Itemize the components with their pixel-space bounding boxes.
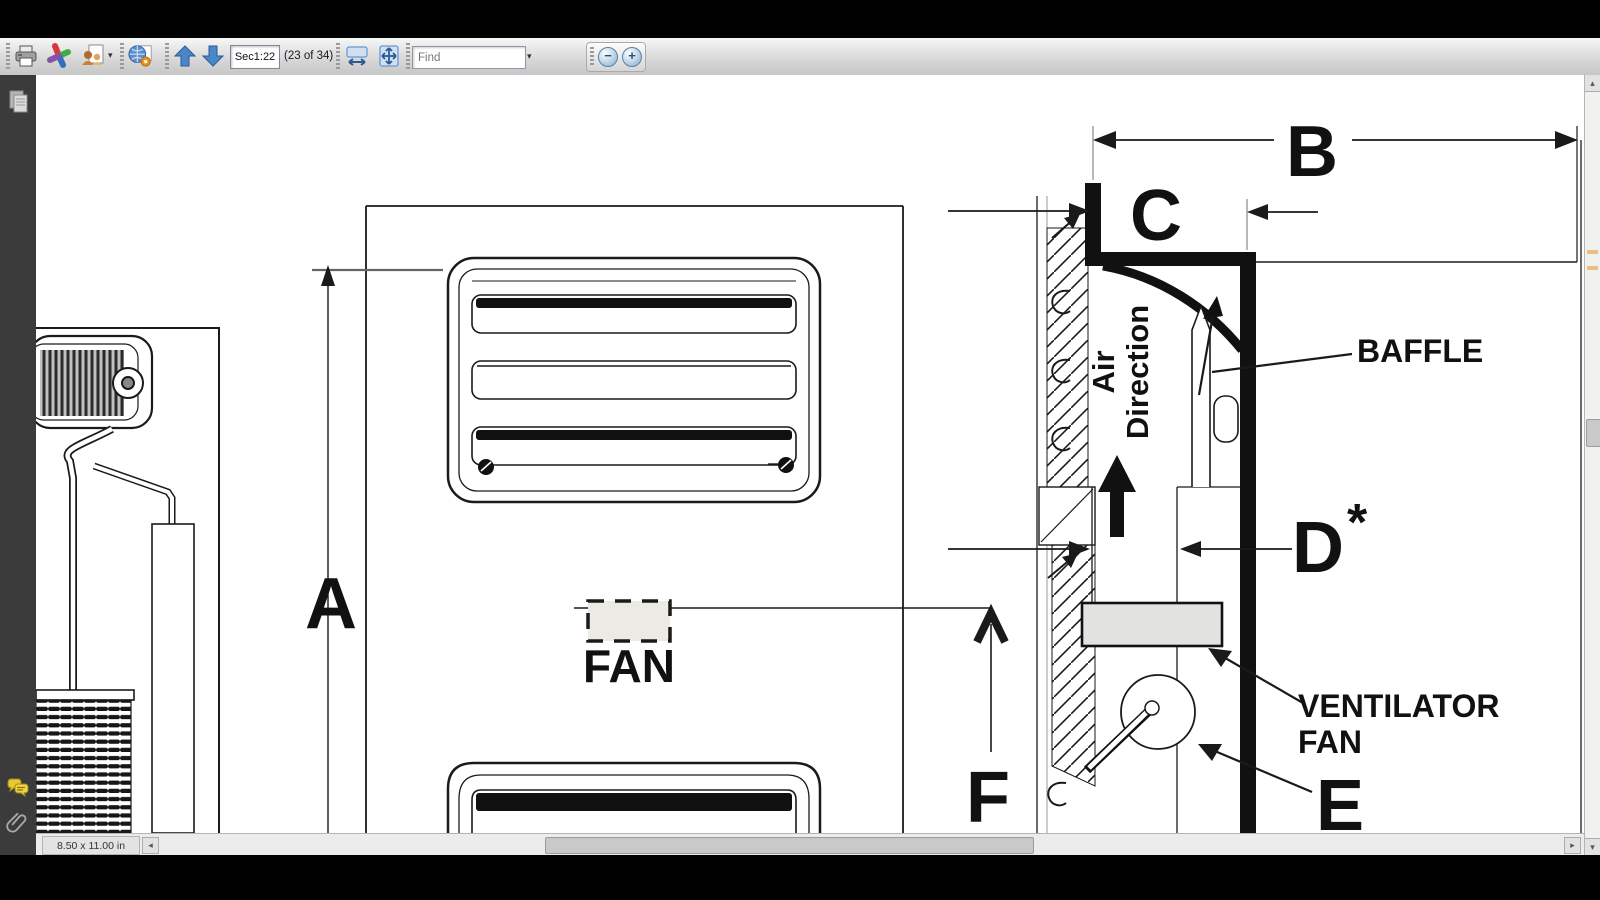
- zoom-button-panel: − +: [586, 42, 646, 72]
- scroll-left-icon: ◂: [148, 841, 153, 850]
- status-bar: 8.50 x 11.00 in ◂ ▸: [36, 833, 1584, 856]
- people-page-icon: [80, 43, 106, 69]
- review-comment-button[interactable]: [46, 43, 72, 69]
- top-letterbox: [0, 0, 1600, 38]
- pages-panel-button[interactable]: [6, 89, 30, 113]
- scroll-down-icon: ▾: [1590, 843, 1595, 852]
- dim-label-d-star: *: [1347, 494, 1368, 552]
- baffle-label: BAFFLE: [1357, 333, 1483, 369]
- paperclip-icon: [6, 811, 30, 835]
- toolbar: ▾ Sec1:22 (23 of 34): [0, 38, 1600, 76]
- toolbar-grip: [6, 43, 10, 69]
- toolbar-grip: [406, 43, 410, 69]
- technical-drawing: A B C D * E F FAN BAFFLE VENTILATOR FAN …: [36, 75, 1584, 833]
- application-window: ▾ Sec1:22 (23 of 34): [0, 0, 1600, 900]
- air-direction-label-line1: Air: [1086, 350, 1121, 393]
- zoom-in-button[interactable]: +: [622, 47, 642, 67]
- page-size-label: 8.50 x 11.00 in: [42, 836, 140, 855]
- next-page-button[interactable]: [200, 43, 226, 69]
- panel-grip: [590, 47, 594, 67]
- comments-icon: [6, 775, 30, 799]
- down-arrow-icon: [201, 44, 225, 68]
- scroll-right-icon: ▸: [1570, 841, 1575, 850]
- toolbar-grip: [336, 43, 340, 69]
- comments-panel-button[interactable]: [6, 775, 30, 799]
- print-button[interactable]: [13, 43, 39, 69]
- toolbar-grip: [165, 43, 169, 69]
- printer-icon: [13, 43, 39, 69]
- air-direction-label-line2: Direction: [1120, 305, 1155, 439]
- fit-page-icon: [377, 44, 401, 68]
- navigation-sidebar: [0, 75, 37, 855]
- dim-label-a: A: [305, 564, 357, 644]
- bottom-letterbox: [0, 855, 1600, 900]
- globe-page-icon: [128, 43, 154, 69]
- dim-label-b: B: [1286, 112, 1338, 192]
- fit-width-icon: [345, 44, 369, 68]
- scroll-left-button[interactable]: ◂: [142, 837, 159, 854]
- find-placeholder: Find: [413, 52, 525, 64]
- fan-label: FAN: [583, 640, 675, 692]
- dim-label-e: E: [1316, 766, 1364, 833]
- scroll-down-button[interactable]: ▾: [1585, 838, 1600, 855]
- pages-icon: [6, 89, 30, 113]
- attachments-panel-button[interactable]: [6, 811, 30, 835]
- horizontal-scroll-thumb[interactable]: [545, 837, 1034, 854]
- shared-review-button[interactable]: [128, 43, 154, 69]
- pinwheel-icon: [46, 43, 72, 69]
- ventilator-label-line1: VENTILATOR: [1298, 688, 1499, 724]
- collaborate-button[interactable]: [80, 43, 106, 69]
- find-dropdown-caret[interactable]: ▾: [527, 51, 532, 62]
- dim-label-d: D: [1292, 508, 1344, 588]
- scroll-up-icon: ▴: [1590, 79, 1595, 88]
- collaborate-dropdown-caret[interactable]: ▾: [108, 50, 113, 61]
- vertical-scroll-thumb[interactable]: [1586, 419, 1600, 447]
- annotation-tick: [1587, 266, 1598, 270]
- vertical-scrollbar[interactable]: ▴ ▾: [1584, 75, 1600, 855]
- annotation-tick: [1587, 250, 1598, 254]
- up-arrow-icon: [173, 44, 197, 68]
- page-count-label: (23 of 34): [284, 50, 333, 62]
- fit-page-button[interactable]: [376, 43, 402, 69]
- scroll-up-button[interactable]: ▴: [1585, 75, 1600, 92]
- previous-page-button[interactable]: [172, 43, 198, 69]
- ventilator-label-line2: FAN: [1298, 724, 1362, 760]
- find-input[interactable]: Find: [412, 46, 526, 69]
- page-number-input[interactable]: Sec1:22: [230, 45, 280, 69]
- toolbar-grip: [120, 43, 124, 69]
- fit-width-button[interactable]: [344, 43, 370, 69]
- dim-label-f: F: [966, 758, 1010, 833]
- zoom-out-button[interactable]: −: [598, 47, 618, 67]
- document-canvas: A B C D * E F FAN BAFFLE VENTILATOR FAN …: [36, 75, 1584, 833]
- scroll-right-button[interactable]: ▸: [1564, 837, 1581, 854]
- dim-label-c: C: [1130, 176, 1182, 256]
